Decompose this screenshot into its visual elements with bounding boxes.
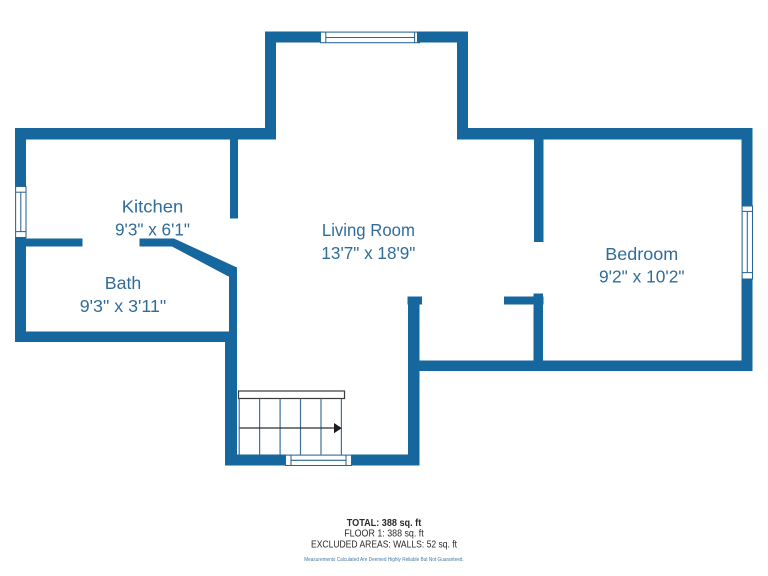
svg-text:Living Room: Living Room [322, 220, 415, 240]
svg-text:EXCLUDED AREAS: WALLS: 52 sq.: EXCLUDED AREAS: WALLS: 52 sq. ft [311, 539, 457, 550]
svg-text:9'3" x 6'1": 9'3" x 6'1" [115, 220, 190, 240]
svg-text:Kitchen: Kitchen [122, 196, 184, 216]
svg-text:FLOOR 1: 388 sq. ft: FLOOR 1: 388 sq. ft [344, 529, 424, 540]
svg-text:Bedroom: Bedroom [605, 244, 678, 264]
svg-text:TOTAL: 388 sq. ft: TOTAL: 388 sq. ft [347, 518, 422, 529]
svg-text:13'7" x 18'9": 13'7" x 18'9" [321, 243, 415, 263]
svg-text:Bath: Bath [105, 273, 142, 293]
svg-text:9'2" x 10'2": 9'2" x 10'2" [599, 267, 685, 287]
svg-text:Measurements Calculated Are De: Measurements Calculated Are Deemed Highl… [304, 557, 464, 563]
svg-text:9'3" x 3'11": 9'3" x 3'11" [80, 296, 167, 316]
